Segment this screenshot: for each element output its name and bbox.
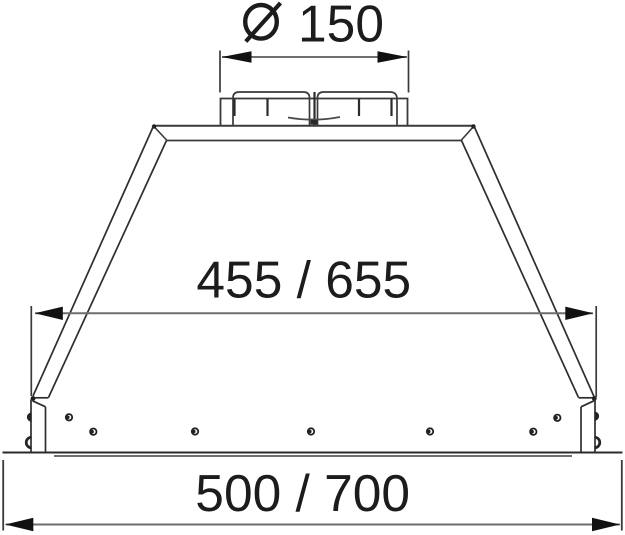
svg-text:500 / 700: 500 / 700 [195, 464, 410, 522]
svg-text:150: 150 [298, 0, 384, 53]
svg-text:455 / 655: 455 / 655 [196, 250, 411, 308]
